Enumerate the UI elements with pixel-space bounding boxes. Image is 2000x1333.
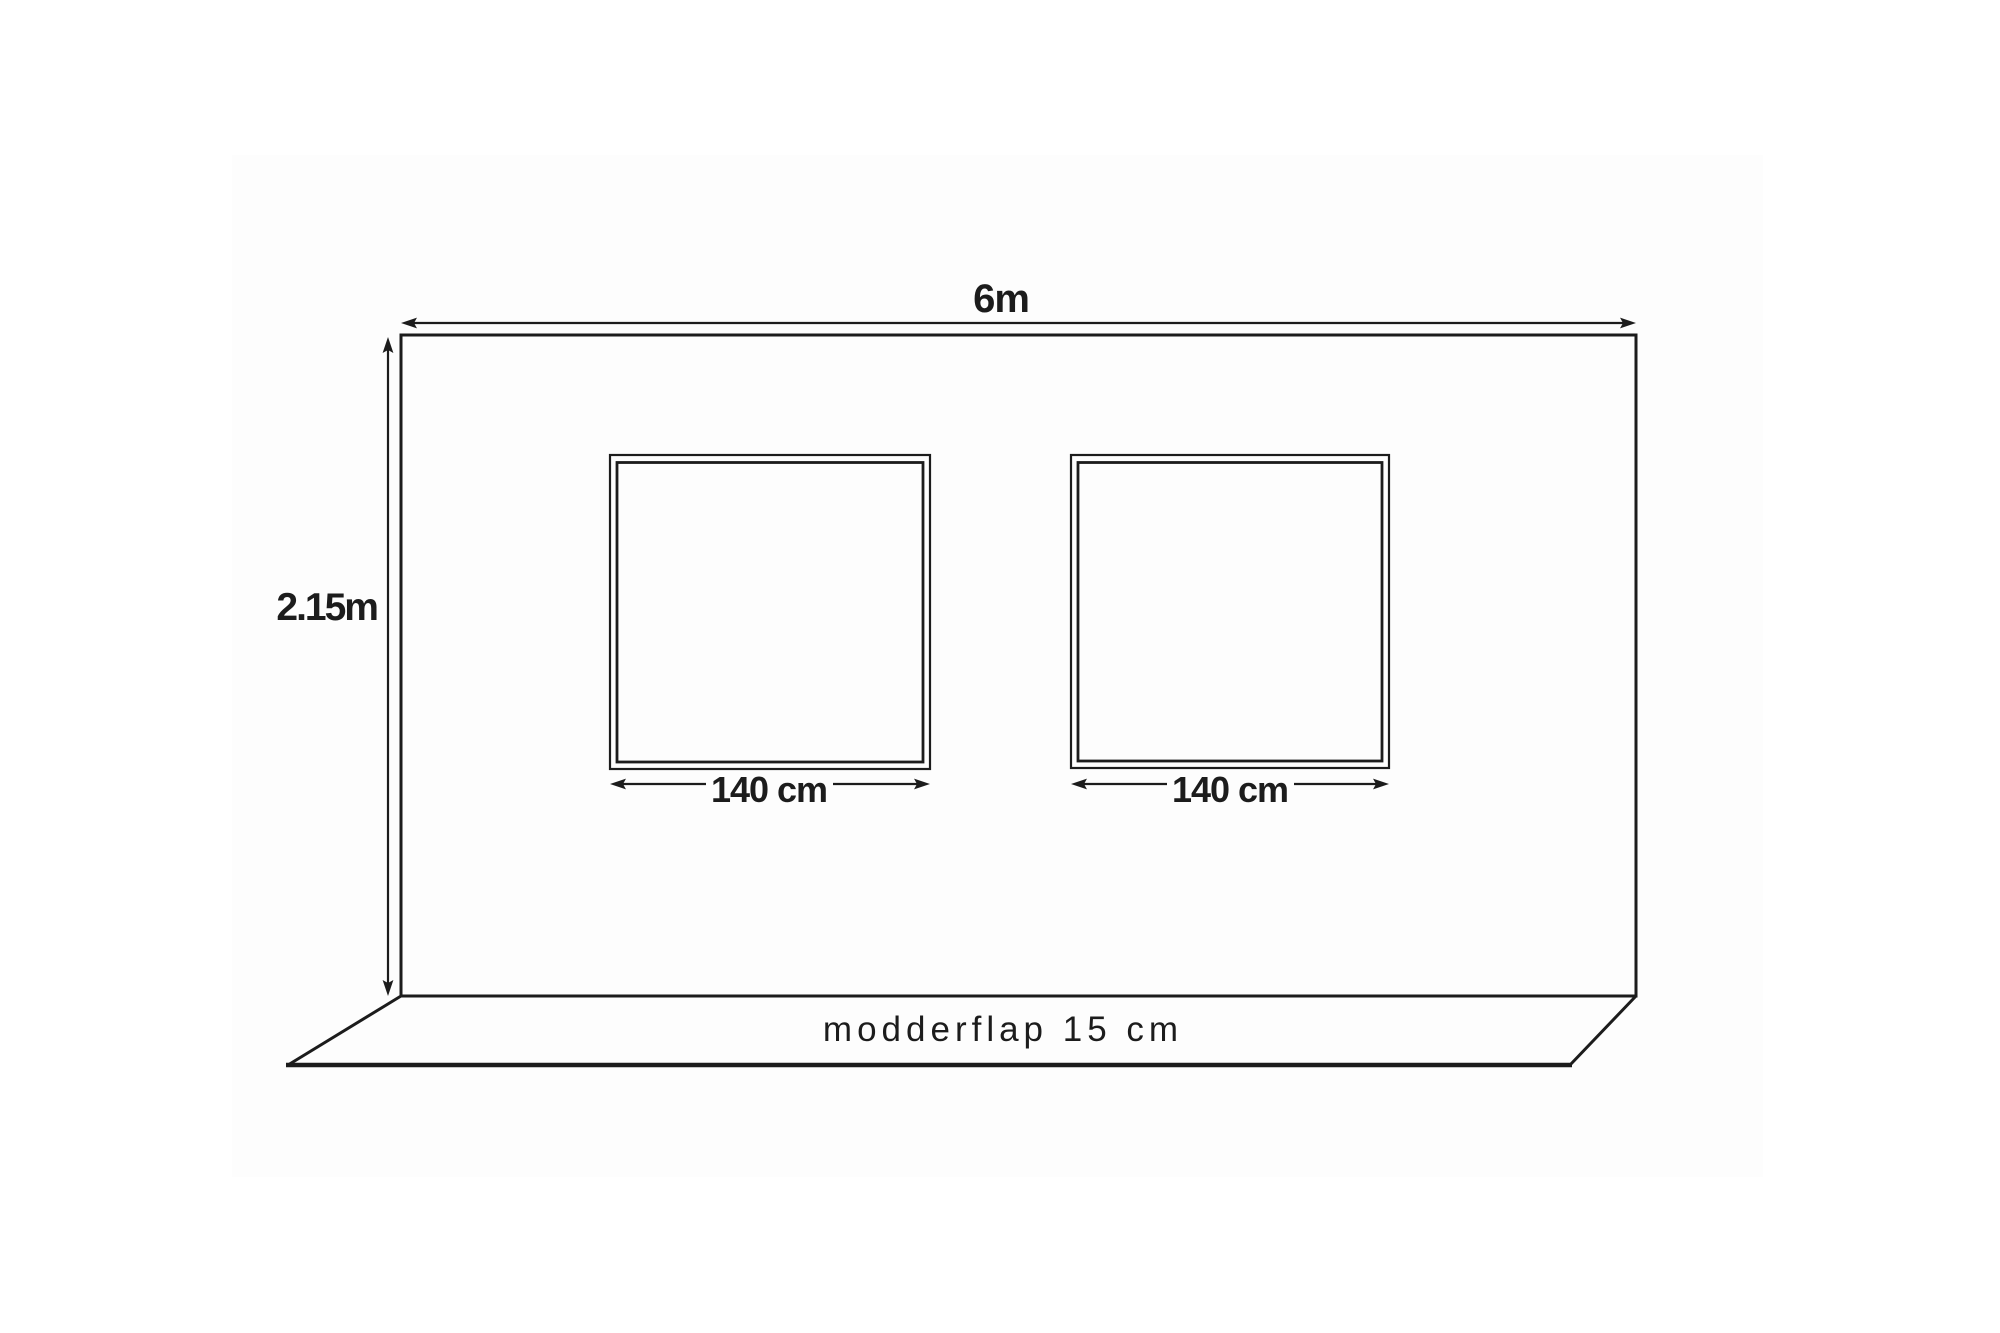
svg-text:2.15m: 2.15m bbox=[276, 586, 377, 629]
svg-text:6m: 6m bbox=[973, 277, 1029, 321]
svg-text:140 cm: 140 cm bbox=[1172, 769, 1288, 810]
svg-text:140 cm: 140 cm bbox=[711, 769, 827, 810]
svg-text:modderflap 15 cm: modderflap 15 cm bbox=[823, 1010, 1183, 1049]
